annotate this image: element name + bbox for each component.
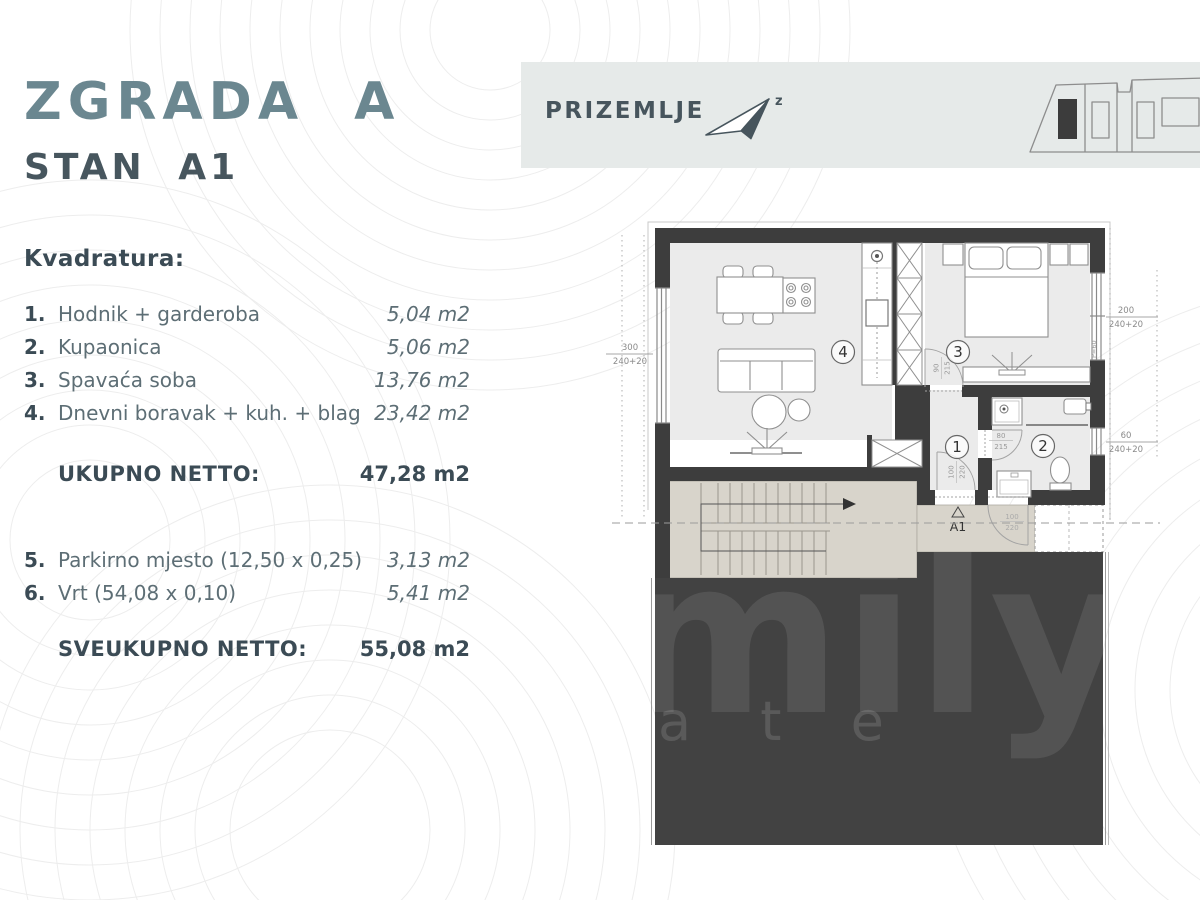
north-letter: z bbox=[775, 94, 783, 109]
page: { "header": { "building": "ZGRADA A", "u… bbox=[0, 0, 1200, 900]
svg-text:100: 100 bbox=[948, 465, 956, 478]
area-row: 3. Spavaća soba 13,76 m2 bbox=[24, 368, 470, 401]
svg-text:220: 220 bbox=[1005, 524, 1018, 532]
svg-text:215: 215 bbox=[994, 443, 1007, 451]
room-number-bedroom: 3 bbox=[953, 343, 963, 361]
area-row: 2. Kupaonica 5,06 m2 bbox=[24, 335, 470, 368]
subtotal-label: UKUPNO NETTO: bbox=[24, 462, 360, 486]
subtotal-value: 47,28 m2 bbox=[360, 462, 470, 486]
row-value: 23,42 m2 bbox=[374, 401, 470, 425]
svg-text:240+20: 240+20 bbox=[1109, 445, 1143, 455]
dimension-bedroom-window: 200 240+20 bbox=[1106, 306, 1158, 330]
svg-text:215: 215 bbox=[944, 361, 952, 374]
north-arrow-icon: z bbox=[703, 90, 791, 146]
room-number-bath: 2 bbox=[1038, 437, 1048, 455]
row-label: Hodnik + garderoba bbox=[58, 302, 387, 326]
shaft-icon bbox=[872, 440, 922, 467]
floor-banner-label: PRIZEMLJE bbox=[545, 98, 705, 124]
dark-window bbox=[1058, 99, 1077, 139]
building-title: ZGRADA A bbox=[24, 76, 400, 128]
row-label: Spavaća soba bbox=[58, 368, 374, 392]
row-value: 5,06 m2 bbox=[387, 335, 470, 359]
total-label: SVEUKUPNO NETTO: bbox=[24, 637, 360, 661]
row-number: 1. bbox=[24, 302, 58, 326]
building-elevation-icon bbox=[1022, 76, 1200, 158]
row-number: 4. bbox=[24, 401, 58, 425]
svg-text:60: 60 bbox=[1121, 431, 1132, 441]
sofa-icon bbox=[718, 349, 815, 392]
toilet-icon bbox=[1050, 457, 1071, 490]
wardrobe-icon bbox=[897, 243, 922, 385]
shower-icon bbox=[992, 398, 1022, 425]
row-value: 13,76 m2 bbox=[374, 368, 470, 392]
unit-title: STAN A1 bbox=[24, 150, 400, 186]
area-row: 6. Vrt (54,08 x 0,10) 5,41 m2 bbox=[24, 581, 470, 614]
area-row: 1. Hodnik + garderoba 5,04 m2 bbox=[24, 302, 470, 335]
row-number: 2. bbox=[24, 335, 58, 359]
row-number: 3. bbox=[24, 368, 58, 392]
svg-text:220: 220 bbox=[959, 465, 967, 478]
svg-text:200: 200 bbox=[1118, 306, 1134, 316]
svg-text:80: 80 bbox=[997, 432, 1006, 440]
washing-machine-icon bbox=[997, 471, 1031, 497]
svg-text:240+20: 240+20 bbox=[613, 357, 647, 367]
area-list: 1. Hodnik + garderoba 5,04 m2 2. Kupaoni… bbox=[24, 302, 470, 434]
total-value: 55,08 m2 bbox=[360, 637, 470, 661]
room-number-hall: 1 bbox=[952, 438, 962, 456]
svg-text:300: 300 bbox=[622, 343, 638, 353]
subtotal-row: UKUPNO NETTO: 47,28 m2 bbox=[24, 462, 470, 486]
row-value: 3,13 m2 bbox=[387, 548, 470, 572]
row-label: Parkirno mjesto (12,50 x 0,25) bbox=[58, 548, 387, 572]
unit-entrance-label: A1 bbox=[950, 519, 967, 534]
floor-plan: mily a t e bbox=[600, 190, 1200, 870]
row-value: 5,04 m2 bbox=[387, 302, 470, 326]
area-row: 4. Dnevni boravak + kuh. + blag 23,42 m2 bbox=[24, 401, 470, 434]
header: ZGRADA A STAN A1 bbox=[24, 76, 400, 186]
watermark-small: a t e bbox=[658, 690, 910, 753]
curve-group-left bbox=[0, 180, 450, 900]
row-label: Dnevni boravak + kuh. + blag bbox=[58, 401, 374, 425]
cooktop-icon bbox=[783, 278, 815, 313]
total-row: SVEUKUPNO NETTO: 55,08 m2 bbox=[24, 637, 470, 661]
parapet-label: P=60 bbox=[1090, 340, 1098, 358]
svg-text:90: 90 bbox=[933, 364, 941, 373]
dimension-bath-window: 60 240+20 bbox=[1106, 431, 1158, 455]
row-label: Vrt (54,08 x 0,10) bbox=[58, 581, 387, 605]
room-number-living: 4 bbox=[838, 343, 848, 361]
kitchen-counter-icon bbox=[862, 243, 892, 385]
row-number: 5. bbox=[24, 548, 58, 572]
area-list-extra: 5. Parkirno mjesto (12,50 x 0,25) 3,13 m… bbox=[24, 548, 470, 614]
row-label: Kupaonica bbox=[58, 335, 387, 359]
dimension-left-window: 300 240+20 bbox=[606, 343, 653, 367]
area-row: 5. Parkirno mjesto (12,50 x 0,25) 3,13 m… bbox=[24, 548, 470, 581]
row-number: 6. bbox=[24, 581, 58, 605]
svg-text:240+20: 240+20 bbox=[1109, 320, 1143, 330]
areas-heading: Kvadratura: bbox=[24, 246, 185, 272]
row-value: 5,41 m2 bbox=[387, 581, 470, 605]
svg-text:100: 100 bbox=[1005, 513, 1018, 521]
